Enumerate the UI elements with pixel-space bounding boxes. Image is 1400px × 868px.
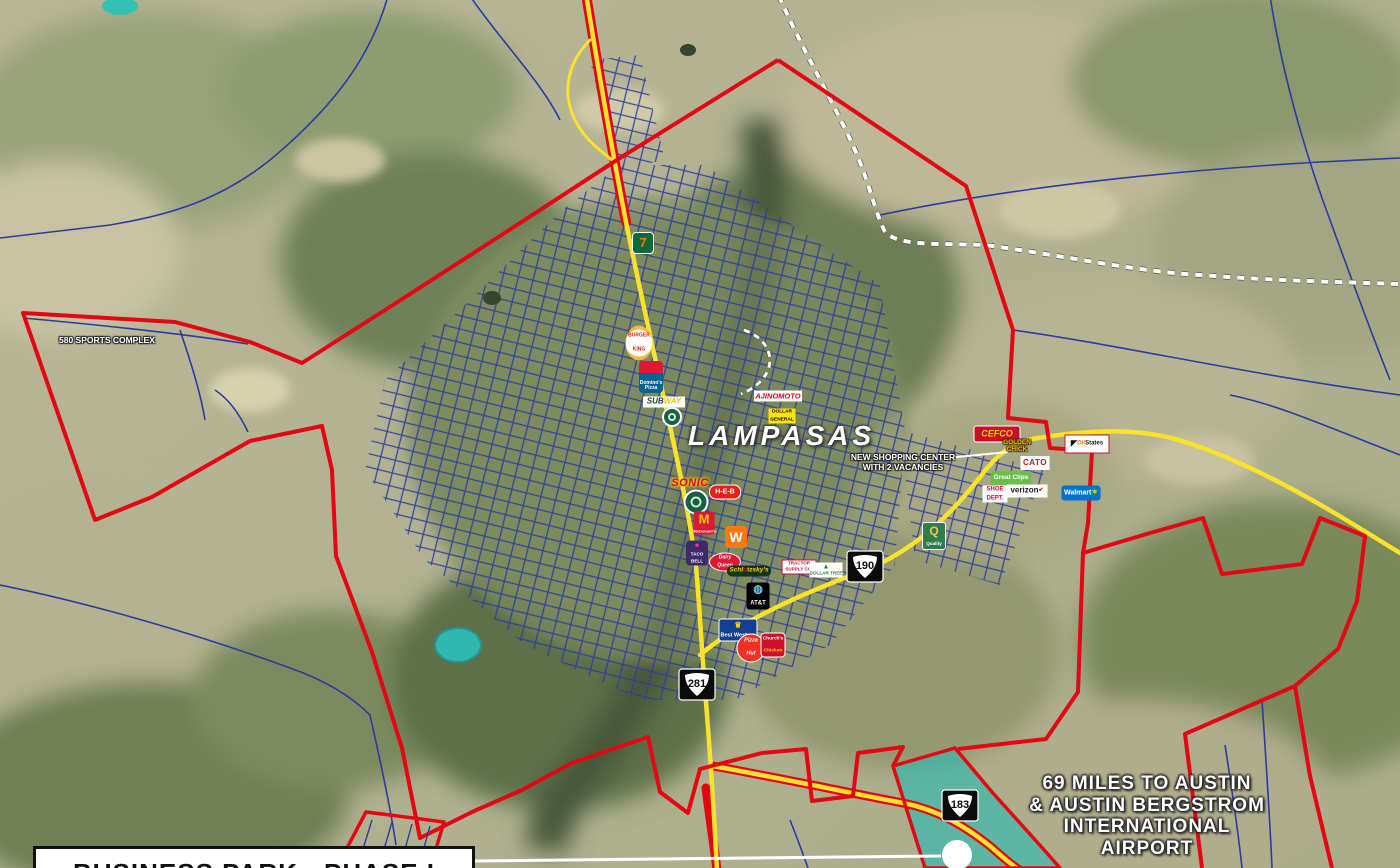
schlotzskys-logo: Schlotzsky's [727, 566, 771, 577]
logo-layer: 7BURGERKINGDomino'sPizzaSUBWAYAJINOMOTOD… [0, 0, 1400, 868]
verizon-logo: verizon✔ [1007, 485, 1048, 498]
cato-logo: CATO [1021, 456, 1050, 470]
us-281-shield: 281 [678, 668, 716, 706]
us-190-shield: 190 [846, 550, 884, 588]
walmart-logo: Walmart✶ [1062, 486, 1101, 501]
att-logo: ◍AT&T [747, 583, 770, 610]
svg-text:183: 183 [951, 799, 969, 811]
business-park-title: BUSINESS PARK - PHASE I [36, 858, 472, 868]
business-park-title-box: BUSINESS PARK - PHASE I [33, 846, 475, 868]
oil-states-logo: ◤OilStates [1065, 435, 1110, 454]
svg-text:190: 190 [856, 560, 874, 572]
svg-text:281: 281 [688, 678, 706, 690]
sonic-logo: SONIC [671, 478, 708, 490]
great-clips-logo: Great Clips [991, 471, 1032, 485]
seven-eleven-logo: 7 [632, 232, 654, 254]
annotation-layer: LAMPASAS 580 SPORTS COMPLEX NEW SHOPPING… [0, 0, 1400, 868]
dollar-tree-logo: ▲DOLLAR TREE [810, 563, 843, 578]
quality-inn-logo: QQuality [922, 522, 946, 550]
ajinomoto-logo: AJINOMOTO [754, 391, 802, 402]
whataburger-logo: W [725, 526, 747, 548]
heb-logo: H-E-B [709, 485, 741, 500]
subway-logo: SUBWAY [643, 397, 685, 408]
green-badge-north-logo [662, 407, 682, 427]
us-183-shield: 183 [941, 789, 979, 827]
aerial-map: LAMPASAS 580 SPORTS COMPLEX NEW SHOPPING… [0, 0, 1400, 868]
shoe-dept-logo: SHOEDEPT. [983, 486, 1008, 503]
dominos-pizza-logo: Domino'sPizza [639, 361, 663, 393]
churchs-chicken-logo: Church'sChicken [761, 633, 786, 658]
mcdonalds-logo: MMcDonald's [694, 512, 715, 535]
burger-king-logo: BURGERKING [626, 326, 653, 361]
dollar-general-logo: DOLLARGENERAL [769, 409, 796, 424]
golden-chick-logo: GOLDENCHICK [993, 440, 1041, 454]
taco-bell-logo: ●TACOBELL [686, 541, 708, 566]
